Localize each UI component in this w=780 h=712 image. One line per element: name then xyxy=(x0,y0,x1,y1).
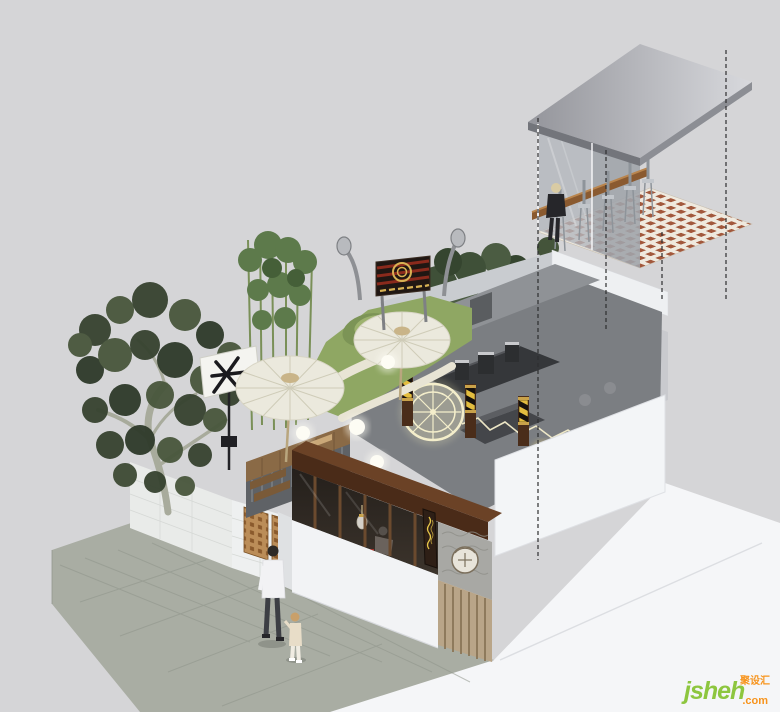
carved-relief-door xyxy=(438,522,492,662)
render-canvas: jsheh 聚设汇 .com xyxy=(0,0,780,712)
vertical-script-sign xyxy=(423,509,437,568)
signboard xyxy=(376,256,430,296)
